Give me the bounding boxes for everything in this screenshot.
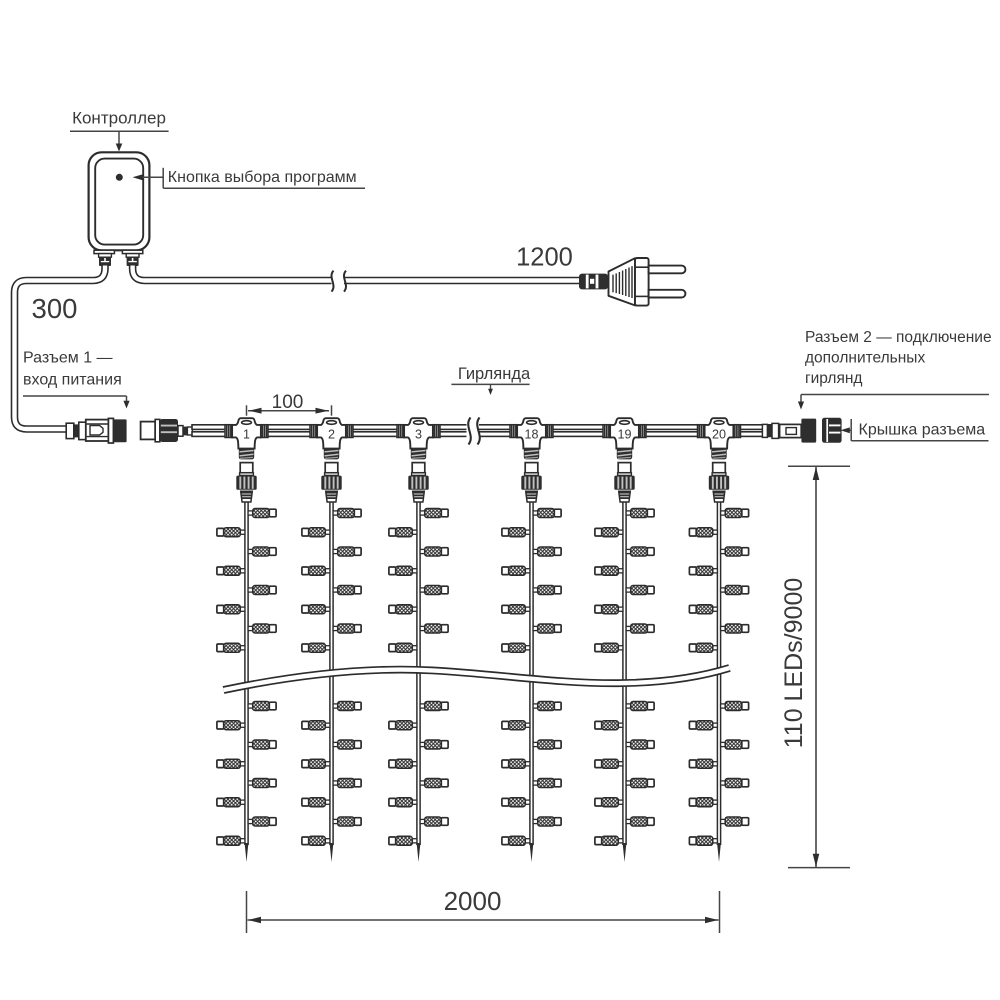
svg-text:Разъем 1 —: Разъем 1 — bbox=[23, 350, 113, 367]
svg-text:Разъем 2 — подключение: Разъем 2 — подключение bbox=[805, 329, 992, 346]
svg-text:19: 19 bbox=[617, 428, 631, 442]
svg-text:Гирлянда: Гирлянда bbox=[458, 365, 531, 383]
svg-text:Кнопка выбора программ: Кнопка выбора программ bbox=[168, 169, 357, 186]
svg-text:Крышка разъема: Крышка разъема bbox=[859, 422, 986, 439]
svg-text:300: 300 bbox=[32, 293, 78, 324]
svg-text:2: 2 bbox=[328, 428, 335, 442]
svg-text:гирлянд: гирлянд bbox=[805, 370, 862, 387]
svg-text:вход питания: вход питания bbox=[23, 372, 122, 389]
svg-text:110 LEDs/9000: 110 LEDs/9000 bbox=[780, 578, 808, 749]
svg-text:Контроллер: Контроллер bbox=[72, 109, 166, 128]
svg-text:1200: 1200 bbox=[516, 244, 573, 272]
svg-text:20: 20 bbox=[712, 428, 726, 442]
svg-text:100: 100 bbox=[272, 392, 304, 413]
svg-text:1: 1 bbox=[243, 428, 250, 442]
svg-text:18: 18 bbox=[524, 428, 538, 442]
svg-text:3: 3 bbox=[415, 428, 422, 442]
svg-text:2000: 2000 bbox=[444, 886, 502, 916]
svg-text:дополнительных: дополнительных bbox=[805, 350, 925, 367]
